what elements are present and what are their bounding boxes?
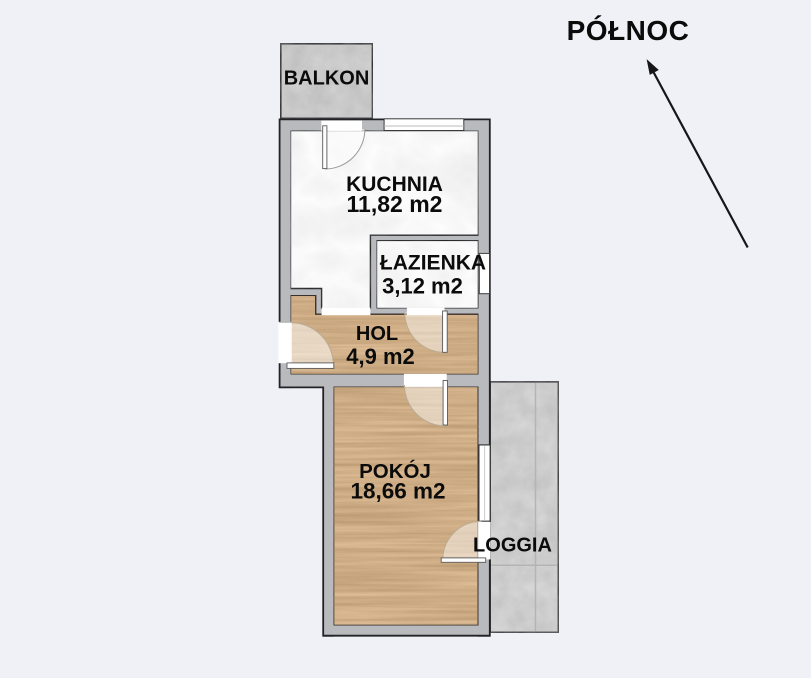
- svg-text:18,66 m2: 18,66 m2: [350, 479, 445, 504]
- svg-text:4,9 m2: 4,9 m2: [346, 344, 415, 369]
- svg-text:11,82 m2: 11,82 m2: [347, 191, 443, 217]
- svg-text:BALKON: BALKON: [284, 68, 370, 90]
- svg-text:ŁAZIENKA: ŁAZIENKA: [380, 252, 486, 275]
- svg-text:3,12 m2: 3,12 m2: [382, 274, 463, 299]
- svg-text:PÓŁNOC: PÓŁNOC: [567, 15, 690, 46]
- svg-text:LOGGIA: LOGGIA: [473, 535, 552, 557]
- svg-text:HOL: HOL: [356, 323, 398, 345]
